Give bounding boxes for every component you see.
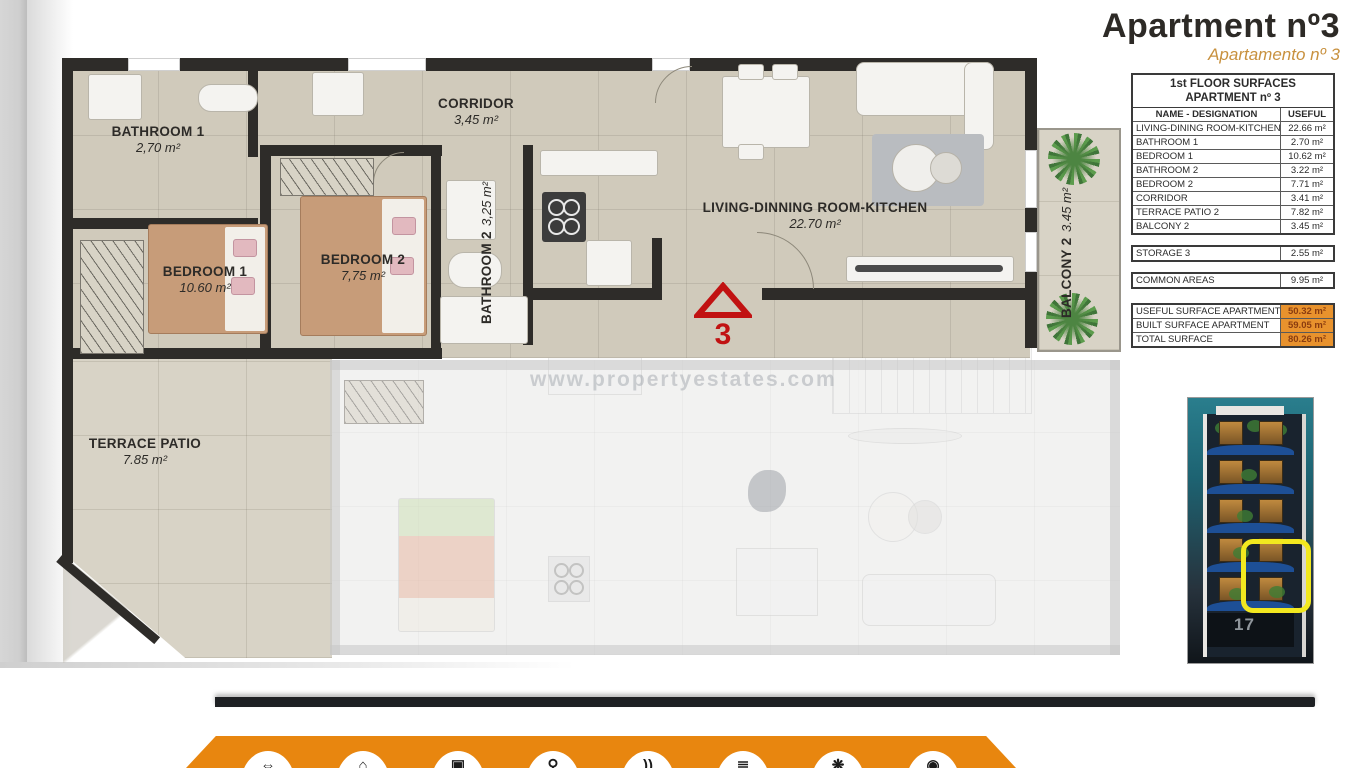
neighbour-sideboard [848, 428, 962, 444]
tv-sideboard [846, 256, 1014, 282]
home-icon: ⌂ [336, 751, 390, 768]
surface-table-main: 1st FLOOR SURFACES APARTMENT nº 3 NAME -… [1131, 73, 1335, 235]
balcony-window-1 [1025, 150, 1037, 208]
blinds-icon: ≣ [716, 751, 770, 768]
window-top-2 [348, 58, 426, 71]
wall-bedroom2-top [260, 145, 442, 156]
page: Apartment nº3 Apartamento nº 3 [0, 0, 1366, 768]
balcony-window-2 [1025, 232, 1037, 272]
kitchen-sink [586, 240, 632, 286]
neighbour-sofa [862, 574, 996, 626]
room-label-corridor: CORRIDOR 3,45 m² [406, 96, 546, 127]
table-row: BUILT SURFACE APARTMENT59.05 m² [1133, 319, 1333, 333]
table-row: TERRACE PATIO 27.82 m² [1133, 206, 1333, 220]
neighbour-person [748, 470, 786, 512]
washbasin [198, 84, 258, 112]
surface-table-totals: USEFUL SURFACE APARTMENT50.32 m² BUILT S… [1131, 303, 1335, 348]
neighbour-wall-left [330, 360, 340, 655]
surface-table-storage: STORAGE 32.55 m² [1131, 245, 1335, 262]
neighbour-side-table [908, 500, 942, 534]
neighbour-wall-right [1110, 360, 1120, 655]
table-row: BALCONY 23.45 m² [1133, 220, 1333, 233]
building-floor-5 [1207, 418, 1294, 455]
table-row: BATHROOM 12.70 m² [1133, 136, 1333, 150]
tv-icon: ▣ [431, 751, 485, 768]
wall-stub [652, 238, 662, 300]
building-parapet [1216, 406, 1284, 415]
room-label-balcony2: BALCONY 2 3.45 m² [1058, 178, 1076, 328]
divider-bar [215, 697, 1315, 707]
building-number: 17 [1234, 615, 1255, 635]
dining-table [722, 76, 810, 148]
pillow [233, 239, 257, 257]
unit-marker-number: 3 [694, 318, 752, 352]
table-row: BATHROOM 23.22 m² [1133, 164, 1333, 178]
table-row: BEDROOM 27.71 m² [1133, 178, 1333, 192]
side-table [930, 152, 962, 184]
apartment-highlight-box [1241, 539, 1311, 613]
table-row: LIVING-DINING ROOM-KITCHEN22.66 m² [1133, 122, 1333, 136]
table-row: COMMON AREAS9.95 m² [1133, 274, 1333, 287]
neighbour-wall-bottom [330, 645, 1120, 655]
kitchen-hob [542, 192, 586, 242]
features-banner: ⇔ ⌂ ▣ ⚲ )) ≣ ❋ ◉ [186, 736, 1016, 768]
neighbour-wall-top [330, 360, 1120, 370]
table-row: STORAGE 32.55 m² [1133, 247, 1333, 260]
neighbour-dining-table [736, 548, 818, 616]
room-label-bathroom1: BATHROOM 1 2,70 m² [88, 124, 228, 155]
table-row: USEFUL SURFACE APARTMENT50.32 m² [1133, 305, 1333, 319]
building-floor-4 [1207, 457, 1294, 494]
kitchen-counter [540, 150, 658, 176]
table-row: TOTAL SURFACE80.26 m² [1133, 333, 1333, 346]
room-label-terrace: TERRACE PATIO 7.85 m² [70, 436, 220, 467]
surface-table-header: NAME - DESIGNATION USEFUL [1133, 108, 1333, 122]
room-label-bathroom2: BATHROOM 2 3,25 m² [478, 178, 496, 328]
air-conditioning-icon: ❋ [811, 751, 865, 768]
neighbour-bed [398, 498, 495, 632]
surface-table: 1st FLOOR SURFACES APARTMENT nº 3 NAME -… [1131, 73, 1335, 348]
watermark: www.propertyestates.com [530, 368, 837, 392]
room-label-bedroom2: BEDROOM 2 7,75 m² [293, 252, 433, 283]
wall-living-bottom-right [762, 288, 1037, 300]
window-top-1 [128, 58, 180, 71]
surface-table-title: 1st FLOOR SURFACES APARTMENT nº 3 [1133, 75, 1333, 108]
heating-icon: )) [621, 751, 675, 768]
dining-chair [738, 64, 764, 80]
dimensions-icon: ⇔ [241, 751, 295, 768]
unit-marker-triangle [694, 282, 752, 320]
wall-left [62, 58, 73, 563]
neighbour-hob [548, 556, 590, 602]
building-render: 17 [1187, 397, 1314, 664]
induction-hob-icon: ◉ [906, 751, 960, 768]
table-row: CORRIDOR3.41 m² [1133, 192, 1333, 206]
floor-plan: BATHROOM 1 2,70 m² CORRIDOR 3,45 m² BEDR… [0, 0, 1150, 700]
pillow [392, 217, 416, 235]
table-row: BEDROOM 110.62 m² [1133, 150, 1333, 164]
building-floor-3 [1207, 496, 1294, 533]
dining-chair [772, 64, 798, 80]
neighbour-wardrobe [344, 380, 424, 424]
surface-table-common: COMMON AREAS9.95 m² [1131, 272, 1335, 289]
shower-tray [88, 74, 142, 120]
dining-chair [738, 144, 764, 160]
lamp-icon: ⚲ [526, 751, 580, 768]
bedroom1-wardrobe [80, 240, 144, 354]
corridor-cabinet [312, 72, 364, 116]
room-label-bedroom1: BEDROOM 1 10.60 m² [135, 264, 275, 295]
room-label-living: LIVING-DINNING ROOM-KITCHEN 22.70 m² [665, 200, 965, 231]
wall-living-bottom-left [533, 288, 661, 300]
bedroom2-wardrobe [280, 158, 374, 196]
